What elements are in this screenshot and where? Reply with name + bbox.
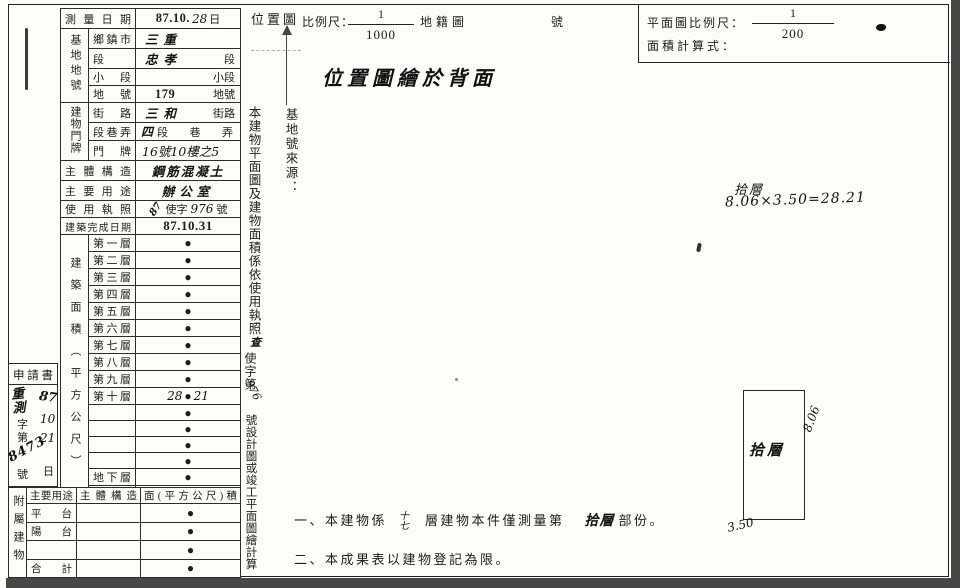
applicant-title: 申請書 [9, 364, 57, 385]
floor-6-dot: ● [184, 322, 191, 334]
door-number-hw: 16號10樓之5 [142, 141, 219, 160]
floor-2-label: 第二層 [89, 252, 136, 269]
annex-total-area: ● [141, 559, 241, 577]
check-mark-hw: 查 [250, 334, 261, 350]
annex-row-terrace: 平台 ● [9, 504, 241, 522]
floor-1-label: 第一層 [89, 235, 136, 252]
footnote-1-floor-count-hw: 十七 [399, 512, 409, 532]
floor-10-pre: 28 [167, 389, 182, 403]
license-suffix: 號 [216, 201, 227, 217]
location-note-handwriting: 位置圖繪於背面 [322, 62, 497, 91]
footnote-1-post: 部份。 [619, 513, 666, 528]
source-license-body: 號設計圖或竣工平面圖繪計算 [244, 414, 256, 570]
building-info-table: 測量日期 87.10. 28 日 基地地號 鄉鎮市 三重 段 忠孝 段 小段 [60, 8, 241, 520]
license-number-hw: 976 [191, 202, 214, 216]
floor-2-value: ● [136, 252, 241, 269]
north-arrow-line [286, 33, 287, 105]
blank-1-dot: ● [184, 407, 191, 419]
blank-4-value: ● [136, 453, 241, 469]
license-row: 使用執照 87 使字 976 號 [61, 201, 241, 218]
license-year-hw: 87 [147, 200, 164, 218]
parcel-number: 179 [141, 87, 175, 102]
scan-edge-right [951, 0, 960, 588]
survey-date-row: 測量日期 87.10. 28 日 [61, 9, 241, 29]
blank-1-label [89, 405, 136, 421]
applicant-number-suffix: 號 [17, 466, 28, 482]
subsection-value: 小段 [136, 69, 241, 86]
blank-2-value: ● [136, 421, 241, 437]
parcel-value: 179 地號 [136, 86, 241, 103]
plan-scale-numerator: 1 [752, 6, 834, 24]
scale-numerator: 1 [348, 7, 414, 25]
parcel-suffix: 地號 [213, 86, 235, 102]
terrace-dot: ● [187, 507, 194, 519]
survey-date-label: 測量日期 [61, 9, 136, 29]
plan-scale-fraction: 1 200 [752, 6, 834, 42]
land-group-label: 基地地號 [69, 34, 80, 94]
floor-7-label: 第七層 [89, 337, 136, 354]
street-suffix: 街路 [213, 105, 235, 121]
floor-10-post: 21 [194, 389, 209, 403]
floor-9-label: 第九層 [89, 371, 136, 388]
basement-value: ● [136, 469, 241, 486]
floor-9-value: ● [136, 371, 241, 388]
blank-3-label [89, 437, 136, 453]
balcony-dot: ● [187, 525, 194, 537]
annex-row-balcony: 陽台 ● [9, 522, 241, 540]
blank-4-label [89, 453, 136, 469]
floor-2-dot: ● [184, 254, 191, 266]
land-row-township: 基地地號 鄉鎮市 三重 [61, 29, 241, 49]
scale-denominator: 1000 [348, 25, 414, 43]
floor-5-label: 第五層 [89, 303, 136, 320]
annex-col-area: 面(平方公尺)積 [141, 488, 241, 504]
top-right-divider-vertical [638, 4, 639, 62]
street-label: 街路 [89, 103, 136, 123]
floor-9-dot: ● [184, 373, 191, 385]
section-label: 段 [89, 49, 136, 69]
floor-count-bottom: 七 [399, 522, 409, 532]
floor-8-label: 第八層 [89, 354, 136, 371]
floor-1-value: ● [136, 235, 241, 252]
annex-row-total: 合計 ● [9, 559, 241, 577]
scale-label: 比例尺： [302, 13, 354, 30]
subsection-suffix: 小段 [213, 69, 235, 85]
door-number-label: 門牌 [89, 141, 136, 161]
section-hw: 忠孝 [141, 49, 182, 68]
annex-total-dot: ● [187, 562, 194, 574]
door-number-value: 16號10樓之5 [136, 141, 241, 161]
blank-3-dot: ● [184, 439, 191, 451]
address-group-label: 建物門牌 [69, 106, 80, 154]
license-value: 87 使字 976 號 [136, 201, 241, 218]
ink-blot [876, 24, 886, 31]
scan-edge-bottom [6, 578, 960, 588]
map-number-label: 號 [551, 13, 563, 30]
applicant-date-month-hw: 10 [40, 412, 55, 426]
floor-3-value: ● [136, 269, 241, 286]
annex-building-table: 附屬建物 主要用途 主體構造 面(平方公尺)積 平台 ● 陽台 ● ● 合計 ● [8, 487, 241, 578]
completion-stamp: 87.10.31 [163, 218, 213, 234]
blank-2-label [89, 421, 136, 437]
area-group-label: 建築面積（平方公尺） [69, 257, 80, 477]
section-suffix: 段 [224, 51, 235, 67]
floor-5-dot: ● [184, 305, 191, 317]
floor-10-label: 第十層 [89, 388, 136, 405]
floor-row-1: 建築面積（平方公尺） 第一層 ● [61, 235, 241, 252]
floor-8-value: ● [136, 354, 241, 371]
blank-2-dot: ● [184, 423, 191, 435]
footnote-1-mid: 層建物本件僅測量第 [425, 513, 565, 528]
completion-label: 建築完成日期 [61, 218, 136, 235]
usage-hw: 辦公室 [162, 181, 215, 200]
floor-7-dot: ● [184, 339, 191, 351]
applicant-date-suffix: 日 [43, 463, 54, 479]
annex-row-blank: ● [9, 541, 241, 559]
cadastral-map-label: 地籍圖 [420, 13, 468, 30]
floor-4-dot: ● [184, 288, 191, 300]
floor-10-value: 28●21 [136, 388, 241, 405]
annex-group-label: 附屬建物 [12, 495, 23, 567]
annex-header-row: 附屬建物 主要用途 主體構造 面(平方公尺)積 [9, 488, 241, 504]
annex-col-use: 主要用途 [27, 488, 77, 504]
blank-3-value: ● [136, 437, 241, 453]
footnote-1-pre: 一、本建物係 [294, 513, 387, 528]
section-value: 忠孝 段 [136, 49, 241, 69]
annex-blank-area: ● [141, 541, 241, 559]
annex-col-structure: 主體構造 [77, 488, 141, 504]
terrace-area: ● [141, 504, 241, 522]
street-hw: 三和 [141, 103, 182, 122]
terrace-structure [77, 504, 141, 522]
plan-scale-label: 平面圖比例尺： [647, 14, 745, 31]
floor-8-dot: ● [184, 356, 191, 368]
parcel-label: 地號 [89, 86, 136, 103]
usage-value: 辦公室 [136, 181, 241, 201]
basement-dot: ● [184, 471, 191, 483]
scanned-survey-form: 位置圖 比例尺： 1 1000 地籍圖 號 平面圖比例尺： 1 200 面積計算… [0, 0, 960, 588]
lane-value: 四 段巷弄 [136, 123, 241, 141]
binding-mark [25, 28, 28, 90]
floor-3-dot: ● [184, 271, 191, 283]
license-prefix: 使字 [166, 201, 188, 217]
footnote-2: 二、本成果表以建物登記為限。 [294, 549, 511, 568]
plan-scale-denominator: 200 [752, 24, 834, 42]
structure-row: 主體構造 鋼筋混凝土 [61, 161, 241, 181]
annex-total-structure [77, 559, 141, 577]
subsection-label: 小段 [89, 69, 136, 86]
annex-blank-label [27, 541, 77, 559]
lane-section-hw: 四 [141, 123, 153, 140]
ink-speck-small [455, 378, 458, 381]
blank-4-dot: ● [184, 455, 191, 467]
survey-date-suffix: 日 [209, 11, 220, 27]
footnote-1: 一、本建物係十七層建物本件僅測量第拾層部份。 [294, 510, 665, 532]
north-arrow-head [282, 25, 292, 35]
applicant-date-day-hw: 21 [40, 431, 55, 445]
annex-blank-structure [77, 541, 141, 559]
floor-1-dot: ● [184, 237, 191, 249]
completion-value: 87.10.31 [136, 218, 241, 235]
land-group-cell: 基地地號 [61, 29, 89, 103]
township-label: 鄉鎮市 [89, 29, 136, 49]
floor-3-label: 第三層 [89, 269, 136, 286]
survey-date-stamp: 87.10. [156, 11, 190, 26]
lane-label: 段巷弄 [89, 123, 136, 141]
township-hw: 三重 [141, 29, 182, 48]
floor-6-value: ● [136, 320, 241, 337]
floor-7-value: ● [136, 337, 241, 354]
usage-label: 主要用途 [61, 181, 136, 201]
scale-fraction: 1 1000 [348, 7, 414, 43]
township-value: 三重 [136, 29, 241, 49]
resurvey-stamp: 重測 [11, 387, 29, 416]
lane-suffix: 段巷弄 [155, 124, 235, 140]
area-group-cell: 建築面積（平方公尺） [61, 235, 89, 503]
balcony-area: ● [141, 522, 241, 540]
basement-label: 地下層 [89, 469, 136, 486]
terrace-label: 平台 [27, 504, 77, 522]
area-formula-label: 面積計算式： [647, 37, 737, 54]
top-right-divider-horizontal [638, 62, 950, 63]
annex-blank-dot: ● [187, 544, 194, 556]
structure-label: 主體構造 [61, 161, 136, 181]
structure-hw: 鋼筋混凝土 [152, 161, 225, 180]
floor-5-value: ● [136, 303, 241, 320]
floor-4-value: ● [136, 286, 241, 303]
north-arrow-crosshair [251, 50, 301, 51]
balcony-label: 陽台 [27, 522, 77, 540]
address-group-cell: 建物門牌 [61, 103, 89, 161]
license-label: 使用執照 [61, 201, 136, 218]
structure-value: 鋼筋混凝土 [136, 161, 241, 181]
annex-group-cell: 附屬建物 [9, 488, 27, 578]
survey-date-day-hw: 28 [192, 12, 207, 26]
floor-6-label: 第六層 [89, 320, 136, 337]
floor-10-dot: ● [184, 390, 191, 402]
applicant-reference-box: 申請書 重測 字第 8473 號 87 10 21 日 [8, 363, 58, 487]
floor-4-label: 第四層 [89, 286, 136, 303]
completion-row: 建築完成日期 87.10.31 [61, 218, 241, 235]
floor-plan-label-hw: 拾層 [749, 439, 785, 460]
balcony-structure [77, 522, 141, 540]
parcel-source-body: 本建物平面圖及建物面積係依使用執照 [247, 106, 260, 336]
blank-1-value: ● [136, 405, 241, 421]
street-value: 三和 街路 [136, 103, 241, 123]
survey-date-value: 87.10. 28 日 [136, 9, 241, 29]
footnote-1-part-hw: 拾層 [585, 513, 615, 529]
floor-plan-rectangle: 拾層 [743, 390, 805, 520]
applicant-date-year-hw: 87 [38, 389, 58, 406]
annex-total-label: 合計 [27, 559, 77, 577]
usage-row: 主要用途 辦公室 [61, 181, 241, 201]
parcel-source-heading: 基地號來源： [284, 108, 297, 195]
address-row-street: 建物門牌 街路 三和 街路 [61, 103, 241, 123]
